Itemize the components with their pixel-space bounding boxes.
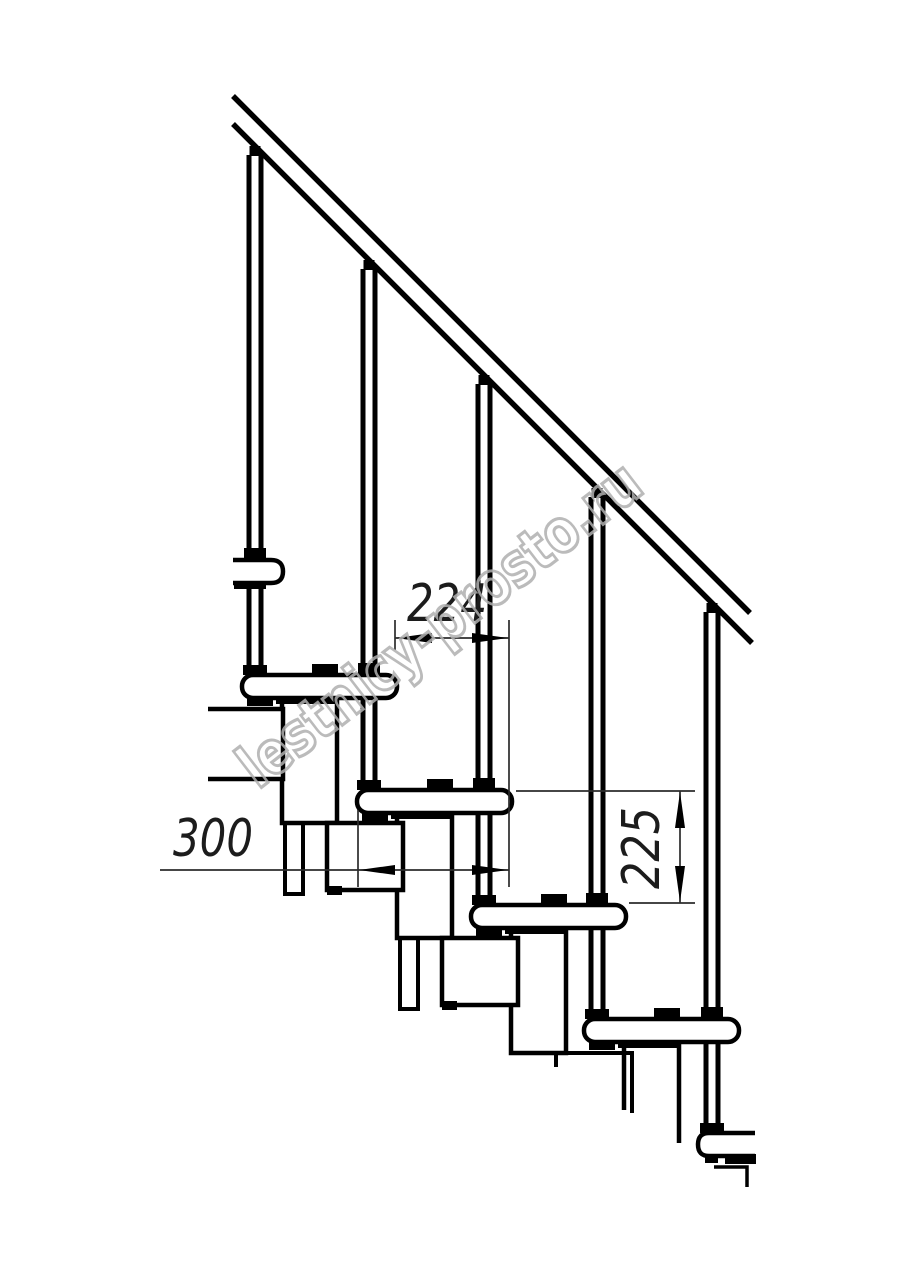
module-square-2 [442, 938, 518, 1005]
staircase-drawing: 224 300 225 lestnicy-prosto.ru [0, 0, 914, 1280]
tread-2 [357, 790, 512, 813]
tread-0-fragment [233, 560, 283, 583]
baluster-joint [244, 548, 266, 560]
arrowhead [675, 792, 685, 828]
support-modules [282, 698, 747, 1187]
baluster-foot [357, 780, 381, 790]
baluster-3 [478, 384, 490, 905]
baluster-foot [700, 1123, 724, 1133]
module-square-1 [327, 823, 403, 890]
baluster-foot [472, 895, 496, 905]
baluster-joint [586, 893, 608, 905]
dimension-label-300: 300 [173, 809, 253, 869]
baluster-joint [473, 778, 495, 790]
baluster-1 [249, 155, 261, 675]
tread-0-underplate [234, 581, 266, 589]
tread-3 [471, 905, 626, 928]
tread-5-cut [698, 1133, 755, 1156]
square-notch-2 [442, 1001, 457, 1010]
module-square-3-cut [556, 1053, 632, 1113]
dimension-label-225: 225 [612, 807, 672, 889]
baluster-joint [701, 1007, 723, 1019]
baluster-foot [585, 1009, 609, 1019]
baluster-foot [243, 665, 267, 675]
tread-4 [584, 1019, 739, 1042]
baluster-5 [706, 612, 718, 1133]
arrowhead [675, 866, 685, 902]
baluster-4 [591, 497, 603, 1019]
staircase-drawing-svg: 224 300 225 lestnicy-prosto.ru [0, 0, 914, 1280]
square-notch-1 [327, 886, 342, 895]
bottom-cut-line [714, 1167, 747, 1187]
